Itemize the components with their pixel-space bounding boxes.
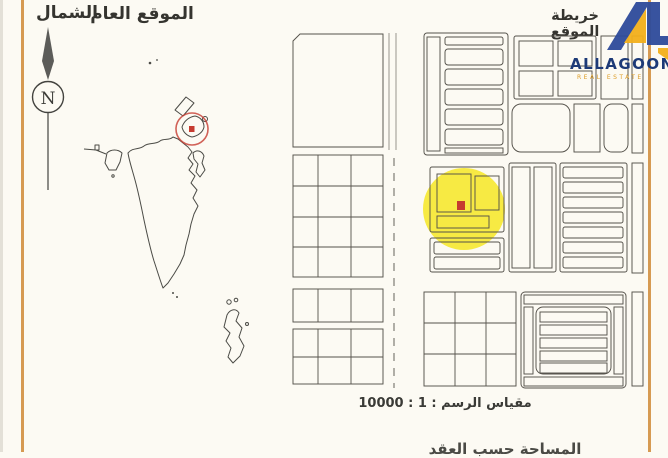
scanned-site-plan-sheet: الشمال الموقع العام خريطة الموقع N xyxy=(0,0,668,452)
highlight-circle xyxy=(423,168,505,250)
footer-partial-text: المساحة حسب العقد xyxy=(415,440,595,458)
location-marker-dot xyxy=(189,126,195,132)
logo-tagline: REAL ESTATE xyxy=(577,74,668,81)
north-compass: N xyxy=(33,27,64,190)
scale-label: مقياس الرسم : 1 : 10000 xyxy=(345,396,545,411)
map-graphics: N xyxy=(0,0,668,452)
north-arrow-icon xyxy=(42,27,54,80)
location-marker-circle xyxy=(176,113,208,145)
compass-circle xyxy=(33,82,64,113)
scan-edge-shadow xyxy=(0,0,3,452)
left-orange-border xyxy=(21,0,24,452)
bahrain-outline-map xyxy=(84,59,249,363)
general-location-title: الموقع العام xyxy=(90,4,194,24)
site-plan-drawing xyxy=(293,33,643,388)
plot-marker xyxy=(457,201,465,210)
logo-name: ALLAGOON xyxy=(570,55,668,73)
site-map-title: خريطة الموقع xyxy=(525,8,625,40)
compass-n-label: N xyxy=(41,89,56,109)
